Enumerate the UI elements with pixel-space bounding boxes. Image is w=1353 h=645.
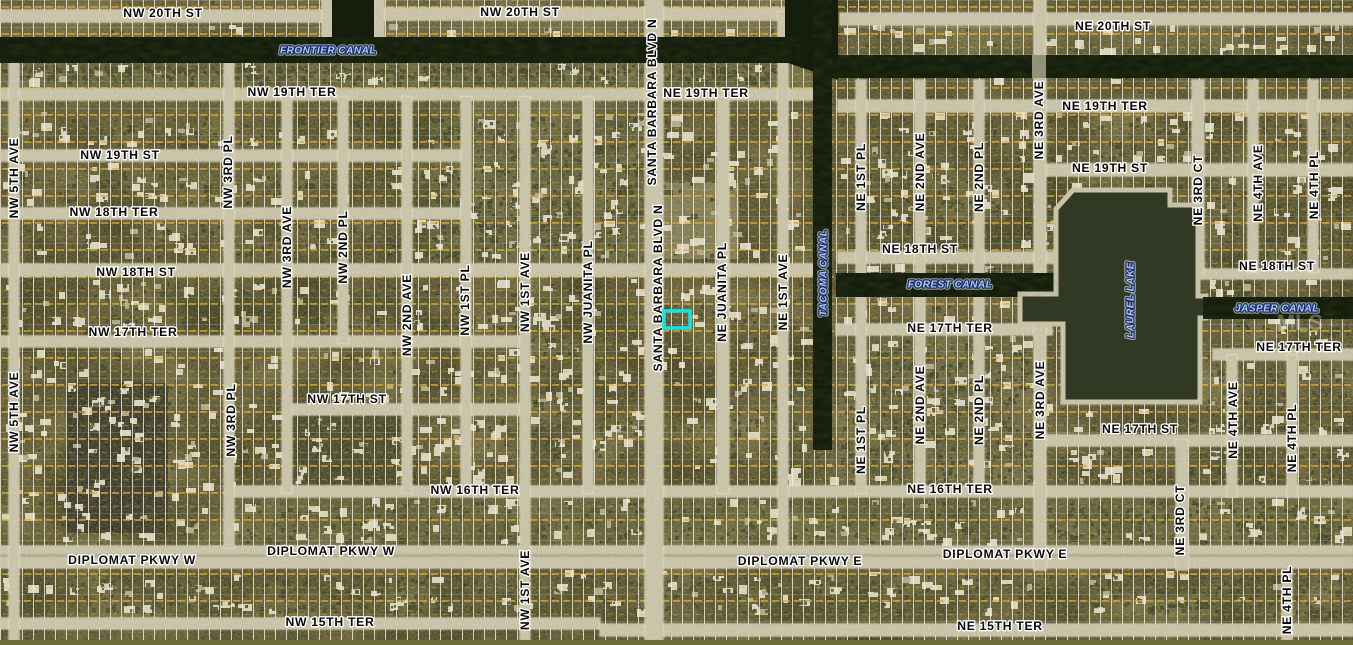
svg-text:NW 19TH TER: NW 19TH TER: [248, 85, 337, 99]
svg-text:NW 16TH TER: NW 16TH TER: [431, 483, 520, 497]
svg-text:SANTA BARBARA BLVD N: SANTA BARBARA BLVD N: [651, 204, 665, 371]
svg-text:NE 4TH AVE: NE 4TH AVE: [1226, 381, 1240, 458]
svg-text:FRONTIER CANAL: FRONTIER CANAL: [280, 46, 376, 57]
svg-text:NE 2ND PL: NE 2ND PL: [972, 375, 986, 445]
svg-text:NW 3RD PL: NW 3RD PL: [224, 383, 238, 456]
svg-text:DIPLOMAT PKWY E: DIPLOMAT PKWY E: [943, 547, 1067, 561]
svg-text:DIPLOMAT PKWY W: DIPLOMAT PKWY W: [267, 544, 395, 558]
svg-text:NE 17TH TER: NE 17TH TER: [907, 321, 993, 335]
svg-text:NW 2ND AVE: NW 2ND AVE: [400, 274, 414, 356]
svg-text:NW 5TH AVE: NW 5TH AVE: [7, 138, 21, 219]
svg-text:NE 4TH PL: NE 4TH PL: [1285, 404, 1299, 473]
svg-text:NW 1ST AVE: NW 1ST AVE: [518, 550, 532, 630]
svg-text:NW 3RD AVE: NW 3RD AVE: [280, 206, 294, 288]
svg-text:NE 19TH TER: NE 19TH TER: [1062, 99, 1148, 113]
svg-text:NE 3RD AVE: NE 3RD AVE: [1032, 81, 1046, 160]
svg-text:NW 18TH ST: NW 18TH ST: [96, 265, 175, 279]
svg-text:NW 20TH ST: NW 20TH ST: [123, 6, 202, 20]
svg-text:NE 19TH ST: NE 19TH ST: [1072, 161, 1148, 175]
svg-text:NE 18TH ST: NE 18TH ST: [1239, 259, 1315, 273]
svg-text:NE 3RD CT: NE 3RD CT: [1191, 155, 1205, 226]
svg-text:TACOMA CANAL: TACOMA CANAL: [819, 230, 830, 317]
svg-text:NW 3RD PL: NW 3RD PL: [221, 135, 235, 208]
svg-text:NW 17TH ST: NW 17TH ST: [307, 392, 386, 406]
svg-text:NE 3RD CT: NE 3RD CT: [1173, 485, 1187, 556]
svg-text:NE 19TH TER: NE 19TH TER: [663, 86, 749, 100]
svg-text:DIPLOMAT PKWY W: DIPLOMAT PKWY W: [68, 553, 196, 567]
svg-text:NE 2ND AVE: NE 2ND AVE: [913, 133, 927, 212]
svg-text:NW 19TH ST: NW 19TH ST: [80, 148, 159, 162]
svg-text:NE 4TH AVE: NE 4TH AVE: [1251, 144, 1265, 221]
svg-text:NW 1ST AVE: NW 1ST AVE: [518, 252, 532, 332]
svg-text:NE 2ND AVE: NE 2ND AVE: [913, 366, 927, 445]
svg-text:FOREST CANAL: FOREST CANAL: [908, 280, 992, 291]
svg-text:NE JUANITA PL: NE JUANITA PL: [715, 242, 729, 342]
svg-text:NW 2ND PL: NW 2ND PL: [336, 210, 350, 283]
svg-text:NE 17TH TER: NE 17TH TER: [1256, 340, 1342, 354]
svg-text:NE 16TH TER: NE 16TH TER: [907, 482, 993, 496]
svg-text:NW 15TH TER: NW 15TH TER: [286, 615, 375, 629]
svg-text:NE 15TH TER: NE 15TH TER: [957, 619, 1043, 633]
svg-text:NE 1ST AVE: NE 1ST AVE: [776, 254, 790, 331]
svg-text:NE 3RD AVE: NE 3RD AVE: [1033, 361, 1047, 440]
svg-text:DIPLOMAT PKWY E: DIPLOMAT PKWY E: [738, 554, 862, 568]
svg-text:NE 17TH ST: NE 17TH ST: [1102, 422, 1178, 436]
svg-text:NE 1ST PL: NE 1ST PL: [854, 143, 868, 211]
svg-text:LAUREL LAKE: LAUREL LAKE: [1126, 262, 1137, 338]
svg-text:NE 2ND PL: NE 2ND PL: [972, 142, 986, 212]
svg-text:SANTA BARBARA BLVD N: SANTA BARBARA BLVD N: [645, 18, 659, 185]
svg-text:MLS: MLS: [1277, 310, 1323, 335]
svg-text:NW 17TH TER: NW 17TH TER: [89, 325, 178, 339]
svg-text:NE 20TH ST: NE 20TH ST: [1075, 19, 1151, 33]
svg-text:NW 18TH TER: NW 18TH TER: [70, 205, 159, 219]
svg-text:NE 18TH ST: NE 18TH ST: [882, 242, 958, 256]
svg-text:NW 5TH AVE: NW 5TH AVE: [7, 372, 21, 453]
svg-text:NW 1ST PL: NW 1ST PL: [458, 264, 472, 335]
svg-text:NE 4TH PL: NE 4TH PL: [1280, 566, 1294, 635]
svg-text:NW 20TH ST: NW 20TH ST: [480, 5, 559, 19]
svg-text:NE 4TH PL: NE 4TH PL: [1307, 151, 1321, 220]
svg-text:NE 1ST PL: NE 1ST PL: [854, 406, 868, 474]
svg-text:NW JUANITA PL: NW JUANITA PL: [581, 240, 595, 343]
